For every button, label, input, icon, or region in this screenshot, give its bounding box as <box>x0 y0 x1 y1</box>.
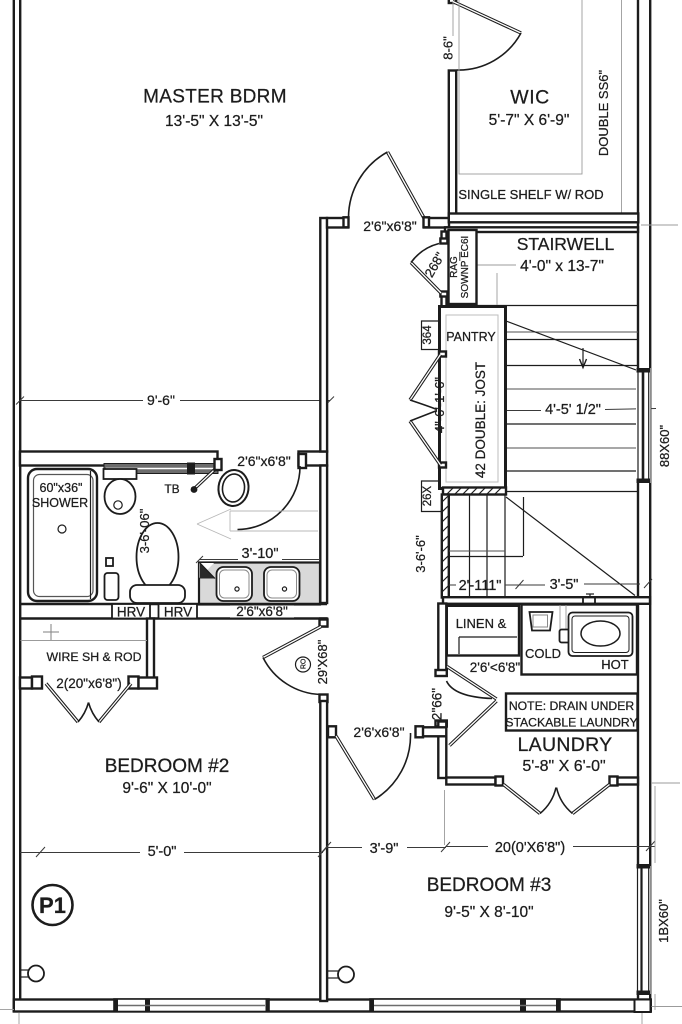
svg-text:2"66": 2"66" <box>430 688 445 720</box>
svg-text:3-6'-06": 3-6'-06" <box>137 508 152 553</box>
svg-text:5'-0": 5'-0" <box>148 844 177 860</box>
svg-text:4'-0" x 13-7": 4'-0" x 13-7" <box>520 258 604 275</box>
svg-text:2'-111": 2'-111" <box>459 578 502 594</box>
svg-text:TB: TB <box>164 482 179 496</box>
svg-text:42 DOUBLE: JOST: 42 DOUBLE: JOST <box>473 362 488 478</box>
svg-text:2(20"x6'8"): 2(20"x6'8") <box>56 676 121 691</box>
svg-text:2'6'x6'8": 2'6'x6'8" <box>353 724 404 740</box>
svg-text:BEDROOM #2: BEDROOM #2 <box>105 756 230 777</box>
svg-text:4"-6'-1'-6": 4"-6'-1'-6" <box>432 377 447 433</box>
svg-text:13'-5" X 13'-5": 13'-5" X 13'-5" <box>165 113 263 130</box>
svg-text:3'-9": 3'-9" <box>370 841 399 857</box>
svg-text:2'6"x6'8": 2'6"x6'8" <box>363 218 416 234</box>
svg-text:1BX60": 1BX60" <box>656 899 671 943</box>
svg-text:BEDROOM #3: BEDROOM #3 <box>427 875 552 896</box>
svg-text:9'-5" X 8'-10": 9'-5" X 8'-10" <box>444 904 533 921</box>
svg-text:LINEN &: LINEN & <box>456 616 507 631</box>
svg-text:HRV: HRV <box>117 605 145 620</box>
svg-text:5'-7" X 6'-9": 5'-7" X 6'-9" <box>489 112 570 129</box>
svg-text:9'-6": 9'-6" <box>147 392 175 408</box>
svg-text:60"x36": 60"x36" <box>40 481 83 495</box>
svg-text:3-6'-6": 3-6'-6" <box>413 535 428 573</box>
svg-text:PANTRY: PANTRY <box>446 330 496 344</box>
svg-text:P1: P1 <box>39 893 66 918</box>
svg-text:HRV: HRV <box>164 605 192 620</box>
svg-text:8-6": 8-6" <box>441 36 456 60</box>
svg-text:STAIRWELL: STAIRWELL <box>517 234 615 254</box>
svg-text:88X60": 88X60" <box>657 425 672 468</box>
svg-text:29'X68": 29'X68" <box>315 639 330 684</box>
svg-text:2'6"x6'8": 2'6"x6'8" <box>237 453 290 469</box>
svg-text:WIRE SH & ROD: WIRE SH & ROD <box>47 650 142 664</box>
svg-text:26X: 26X <box>422 485 434 506</box>
svg-text:20(0'X6'8"): 20(0'X6'8") <box>495 840 565 856</box>
svg-text:STACKABLE LAUNDRY: STACKABLE LAUNDRY <box>505 716 637 730</box>
svg-text:SINGLE SHELF W/ ROD: SINGLE SHELF W/ ROD <box>458 187 603 202</box>
svg-text:2'6"x6'8": 2'6"x6'8" <box>236 604 288 619</box>
svg-text:RO: RO <box>301 658 308 669</box>
svg-text:9'-6" X 10'-0": 9'-6" X 10'-0" <box>122 780 211 797</box>
svg-text:2'6'<6'8": 2'6'<6'8" <box>470 660 521 675</box>
svg-text:3'-5": 3'-5" <box>550 577 579 593</box>
svg-text:5'-8" X 6'-0": 5'-8" X 6'-0" <box>522 758 605 775</box>
svg-text:364: 364 <box>422 325 434 345</box>
svg-text:COLD: COLD <box>525 646 561 661</box>
svg-text:SHOWER: SHOWER <box>32 496 88 510</box>
svg-text:NOTE: DRAIN UNDER: NOTE: DRAIN UNDER <box>509 699 634 713</box>
svg-text:DOUBLE SS6": DOUBLE SS6" <box>596 69 611 156</box>
svg-text:LAUNDRY: LAUNDRY <box>518 734 613 756</box>
svg-text:MASTER BDRM: MASTER BDRM <box>143 87 287 108</box>
svg-text:3'-10": 3'-10" <box>242 546 279 562</box>
svg-text:4'-5' 1/2": 4'-5' 1/2" <box>545 402 601 418</box>
svg-text:WIC: WIC <box>510 87 549 109</box>
svg-text:SOWNP EC6I: SOWNP EC6I <box>460 236 471 299</box>
svg-text:HOT: HOT <box>601 657 629 672</box>
